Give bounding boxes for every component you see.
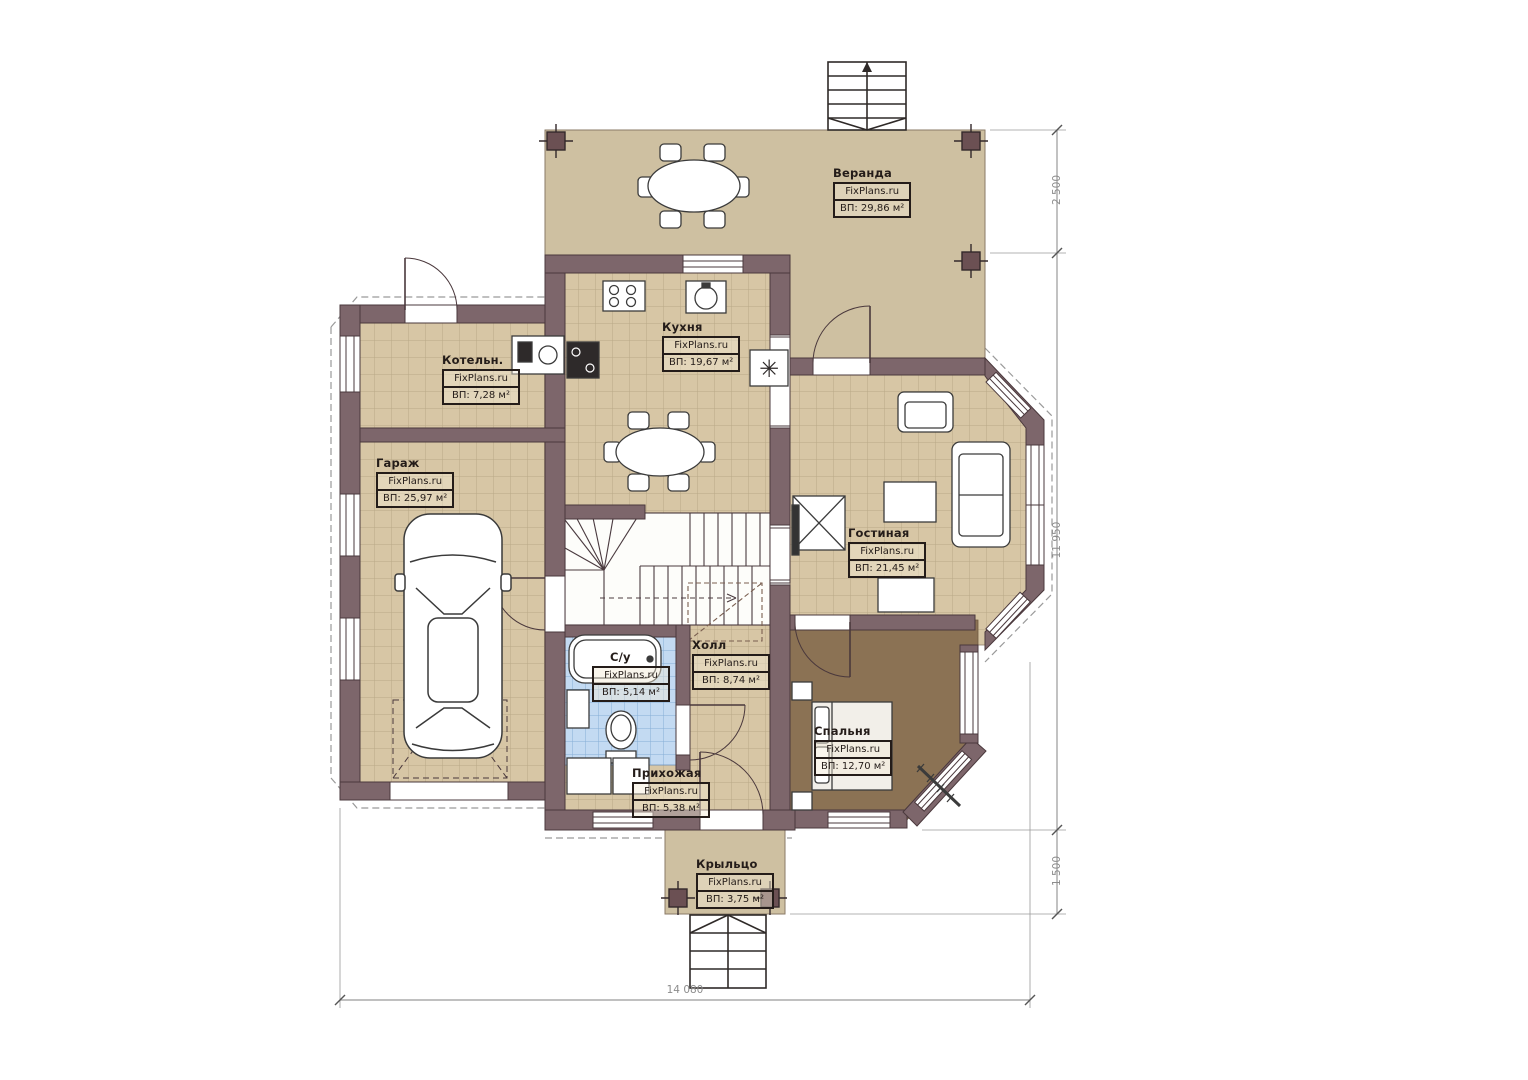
room-name: Веранда: [833, 166, 911, 180]
room-name: Прихожая: [632, 766, 710, 780]
toilet: [606, 711, 636, 763]
room-name: Спальня: [814, 724, 892, 738]
room-label-hallway: Прихожая FixPlans.ru ВП: 5,38 м²: [632, 766, 710, 818]
room-info-box: FixPlans.ru ВП: 3,75 м²: [696, 873, 774, 909]
dim-veranda-depth: 2 500: [1051, 155, 1063, 225]
window-left-1: [340, 336, 360, 392]
dim-house-height: 11 950: [1051, 505, 1063, 575]
watermark: FixPlans.ru: [634, 784, 708, 799]
dim-house-width: 14 080: [650, 984, 720, 996]
nightstand: [792, 792, 812, 810]
room-info-box: FixPlans.ru ВП: 5,38 м²: [632, 782, 710, 818]
window-left-2: [340, 494, 360, 556]
room-name: С/у: [610, 650, 670, 664]
garage-car: [395, 514, 511, 758]
bath-sink: [567, 690, 589, 728]
room-label-living: Гостиная FixPlans.ru ВП: 21,45 м²: [848, 526, 926, 578]
watermark: FixPlans.ru: [816, 742, 890, 757]
window-bedroom-south: [828, 812, 890, 828]
door-boiler-exterior: [405, 258, 457, 323]
room-info-box: FixPlans.ru ВП: 8,74 м²: [692, 654, 770, 690]
watermark: FixPlans.ru: [694, 656, 768, 671]
room-name: Гараж: [376, 456, 454, 470]
room-area: ВП: 5,38 м²: [634, 799, 708, 816]
porch-steps: [690, 915, 766, 988]
watermark: FixPlans.ru: [378, 474, 452, 489]
watermark: FixPlans.ru: [698, 875, 772, 890]
room-area: ВП: 5,14 м²: [594, 683, 668, 700]
watermark: FixPlans.ru: [594, 668, 668, 683]
floor-plan: ✳: [0, 0, 1528, 1080]
vent-box: ✳: [750, 350, 788, 386]
room-name: Кухня: [662, 320, 740, 334]
watermark: FixPlans.ru: [444, 371, 518, 386]
room-label-bathroom: С/у FixPlans.ru ВП: 5,14 м²: [592, 650, 670, 702]
room-area: ВП: 19,67 м²: [664, 353, 738, 370]
room-info-box: FixPlans.ru ВП: 5,14 м²: [592, 666, 670, 702]
window-left-3: [340, 618, 360, 680]
stove: [603, 281, 645, 311]
hob: [567, 342, 599, 378]
room-name: Холл: [692, 638, 770, 652]
veranda-steps: [828, 62, 906, 130]
room-name: Крыльцо: [696, 857, 774, 871]
room-info-box: FixPlans.ru ВП: 21,45 м²: [848, 542, 926, 578]
window-bay-right: [1026, 445, 1044, 565]
room-area: ВП: 7,28 м²: [444, 386, 518, 403]
room-info-box: FixPlans.ru ВП: 29,86 м²: [833, 182, 911, 218]
floor-plan-drawing: ✳: [0, 0, 1528, 1080]
kitchen-sink: [686, 281, 726, 313]
room-area: ВП: 25,97 м²: [378, 489, 452, 506]
side-table: [878, 578, 934, 612]
tv: [792, 505, 799, 555]
window-bedroom-east: [960, 652, 978, 734]
window-kitchen-pass: [683, 255, 743, 273]
vent-icon: ✳: [759, 355, 779, 383]
room-info-box: FixPlans.ru ВП: 19,67 м²: [662, 336, 740, 372]
coffee-table: [884, 482, 936, 522]
room-area: ВП: 29,86 м²: [835, 199, 909, 216]
watermark: FixPlans.ru: [664, 338, 738, 353]
room-name: Гостиная: [848, 526, 926, 540]
room-label-hall: Холл FixPlans.ru ВП: 8,74 м²: [692, 638, 770, 690]
room-label-garage: Гараж FixPlans.ru ВП: 25,97 м²: [376, 456, 454, 508]
room-label-boiler: Котельн. FixPlans.ru ВП: 7,28 м²: [442, 353, 520, 405]
room-label-bedroom: Спальня FixPlans.ru ВП: 12,70 м²: [814, 724, 892, 776]
fireplace: [793, 496, 845, 550]
dim-porch-depth: 1 500: [1051, 836, 1063, 906]
opening-hall-living: [770, 525, 790, 583]
room-label-veranda: Веранда FixPlans.ru ВП: 29,86 м²: [833, 166, 911, 218]
main-staircase: [565, 513, 770, 641]
room-info-box: FixPlans.ru ВП: 12,70 м²: [814, 740, 892, 776]
room-area: ВП: 12,70 м²: [816, 757, 890, 774]
room-label-kitchen: Кухня FixPlans.ru ВП: 19,67 м²: [662, 320, 740, 372]
room-area: ВП: 3,75 м²: [698, 890, 772, 907]
sofa: [952, 442, 1010, 547]
room-label-porch: Крыльцо FixPlans.ru ВП: 3,75 м²: [696, 857, 774, 909]
room-info-box: FixPlans.ru ВП: 25,97 м²: [376, 472, 454, 508]
room-info-box: FixPlans.ru ВП: 7,28 м²: [442, 369, 520, 405]
room-area: ВП: 21,45 м²: [850, 559, 924, 576]
watermark: FixPlans.ru: [850, 544, 924, 559]
nightstand: [792, 682, 812, 700]
room-area: ВП: 8,74 м²: [694, 671, 768, 688]
room-name: Котельн.: [442, 353, 520, 367]
watermark: FixPlans.ru: [835, 184, 909, 199]
armchair: [898, 392, 953, 432]
